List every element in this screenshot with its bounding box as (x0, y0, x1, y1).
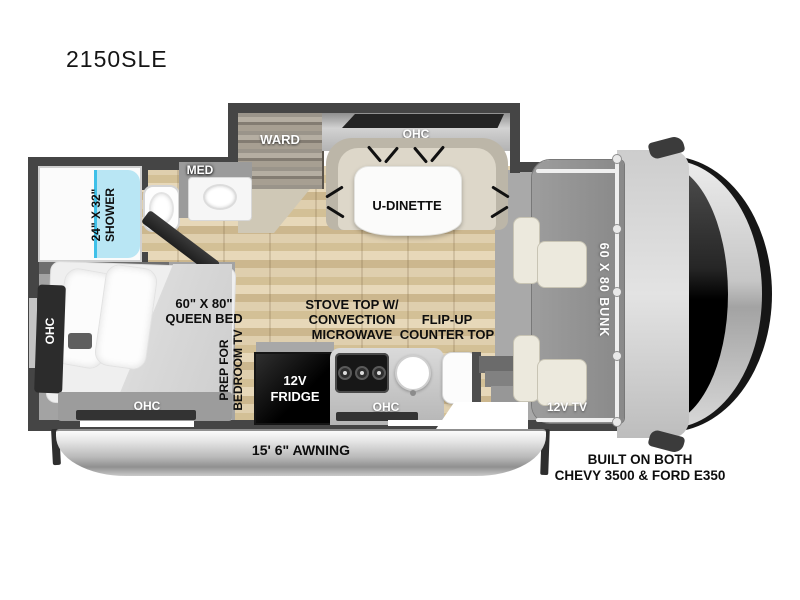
passenger-seat-back (513, 217, 540, 284)
bunk-trim (536, 169, 618, 173)
sink-faucet (410, 390, 416, 396)
kitchen-window-sill (388, 420, 442, 426)
trim-rivet (612, 351, 622, 361)
vanity-sink (203, 184, 237, 210)
flip-counter-note: FLIP-UP COUNTER TOP (396, 311, 498, 343)
chassis-note: BUILT ON BOTH CHEVY 3500 & FORD E350 (538, 452, 742, 484)
wardrobe-label: WARD (238, 132, 322, 148)
model-title: 2150SLE (66, 46, 168, 73)
kitchen-sink (395, 355, 431, 391)
stove-burner (338, 366, 352, 380)
trim-rivet (612, 417, 622, 427)
stove-note: STOVE TOP W/ CONVECTION MICROWAVE (296, 297, 408, 342)
awning: 15' 6" AWNING (56, 429, 546, 476)
shower-label: 24" X 32" SHOWER (56, 168, 150, 262)
dinette-window (342, 114, 504, 128)
dinette-table-label: U-DINETTE (354, 198, 460, 213)
bunk-label: 60 X 80 BUNK (546, 232, 662, 348)
bedroom-side-ohc-label: OHC (26, 307, 74, 355)
driver-seat-back (513, 335, 540, 402)
stove-burner (372, 366, 386, 380)
med-cabinet-label: MED (174, 162, 226, 178)
slideout-top-wall (228, 103, 520, 113)
trim-rivet (612, 154, 622, 164)
stove-top (335, 353, 389, 393)
fridge: 12V FRIDGE (254, 352, 336, 425)
floorplan-canvas: 2150SLE WARD OHC U-DINETTE 24" X 32" SHO… (0, 0, 800, 600)
bunk-trim (536, 418, 618, 422)
cab-tv-label: 12V TV (534, 400, 600, 414)
stove-burner (355, 366, 369, 380)
